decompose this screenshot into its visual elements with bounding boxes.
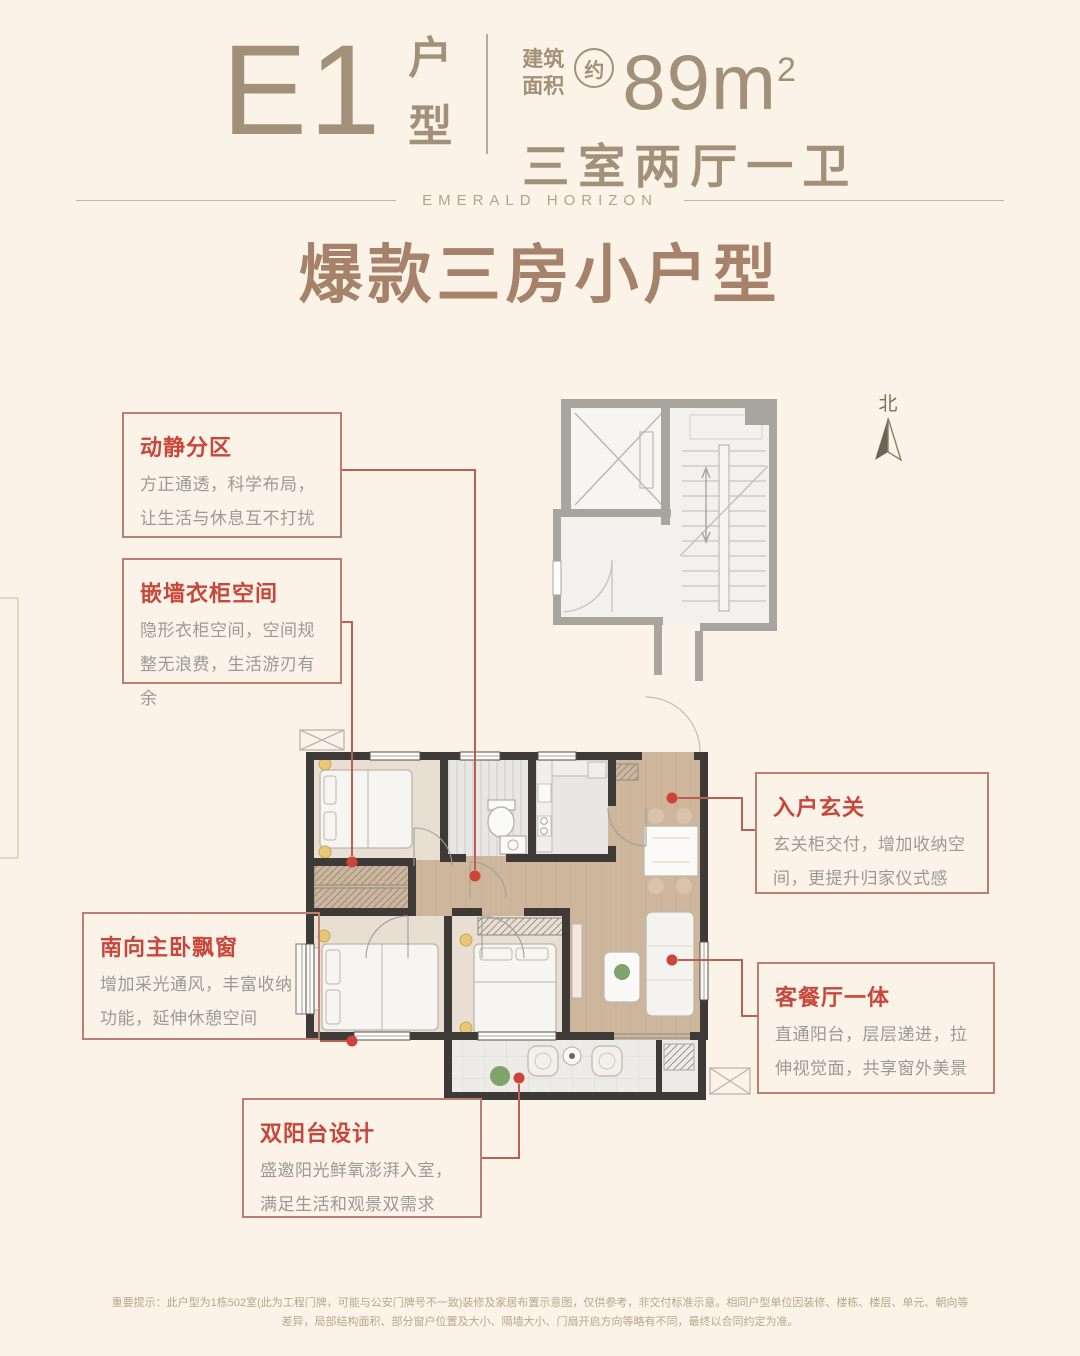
callout-body: 隐形衣柜空间，空间规整无浪费，生活游刃有余 (140, 614, 324, 716)
callout-heading: 客餐厅一体 (775, 980, 977, 1012)
anchor-dot (514, 1073, 525, 1084)
callout-living-dining: 客餐厅一体 直通阳台，层层递进，拉伸视觉面，共享窗外美景 (757, 962, 995, 1094)
callout-body: 方正通透，科学布局，让生活与休息互不打扰 (140, 468, 324, 536)
bedroom-north (319, 758, 412, 858)
public-core (553, 399, 777, 752)
anchor-dot (470, 871, 481, 882)
anchor-dot (347, 1036, 358, 1047)
callout-bay-window: 南向主卧飘窗 增加采光通风，丰富收纳功能，延伸休憩空间 (82, 912, 320, 1040)
callout-heading: 南向主卧飘窗 (100, 930, 302, 962)
callout-heading: 入户玄关 (773, 790, 971, 822)
callout-body: 盛邀阳光鲜氧澎湃入室，满足生活和观景双需求 (260, 1154, 464, 1222)
floor-plan-poster: E1 户 型 建筑 面积 约 89m2 三室两厅一卫 EMERALD HORIZ… (0, 0, 1080, 1356)
callout-zoning: 动静分区 方正通透，科学布局，让生活与休息互不打扰 (122, 412, 342, 538)
anchor-dot (667, 793, 678, 804)
master-bedroom (310, 930, 438, 1030)
callout-heading: 双阳台设计 (260, 1116, 464, 1148)
callout-heading: 动静分区 (140, 430, 324, 462)
callout-body: 玄关柜交付，增加收纳空间，更提升归家仪式感 (773, 828, 971, 896)
north-arrow-icon: 北 (875, 393, 901, 460)
entry-door-arc (645, 697, 700, 752)
elevator-icon (571, 409, 666, 509)
plant-icon (614, 964, 630, 980)
disclaimer: 重要提示：此户型为1栋502室(此为工程门牌，可能与公安门牌号不一致)装修及家居… (110, 1294, 970, 1332)
anchor-dot (347, 857, 358, 868)
callout-body: 增加采光通风，丰富收纳功能，延伸休憩空间 (100, 968, 302, 1036)
plant-icon (490, 1066, 510, 1086)
tv-console (572, 924, 582, 998)
callout-double-balcony: 双阳台设计 盛邀阳光鲜氧澎湃入室，满足生活和观景双需求 (242, 1098, 482, 1218)
neighbor-outline (0, 598, 18, 858)
callout-body: 直通阳台，层层递进，拉伸视觉面，共享窗外美景 (775, 1018, 977, 1086)
callout-entry-foyer: 入户玄关 玄关柜交付，增加收纳空间，更提升归家仪式感 (755, 772, 989, 894)
callout-heading: 嵌墙衣柜空间 (140, 576, 324, 608)
apartment (296, 730, 750, 1100)
callout-wardrobe: 嵌墙衣柜空间 隐形衣柜空间，空间规整无浪费，生活游刃有余 (122, 558, 342, 684)
north-label-glyph: 北 (878, 393, 897, 415)
anchor-dot (667, 955, 678, 966)
